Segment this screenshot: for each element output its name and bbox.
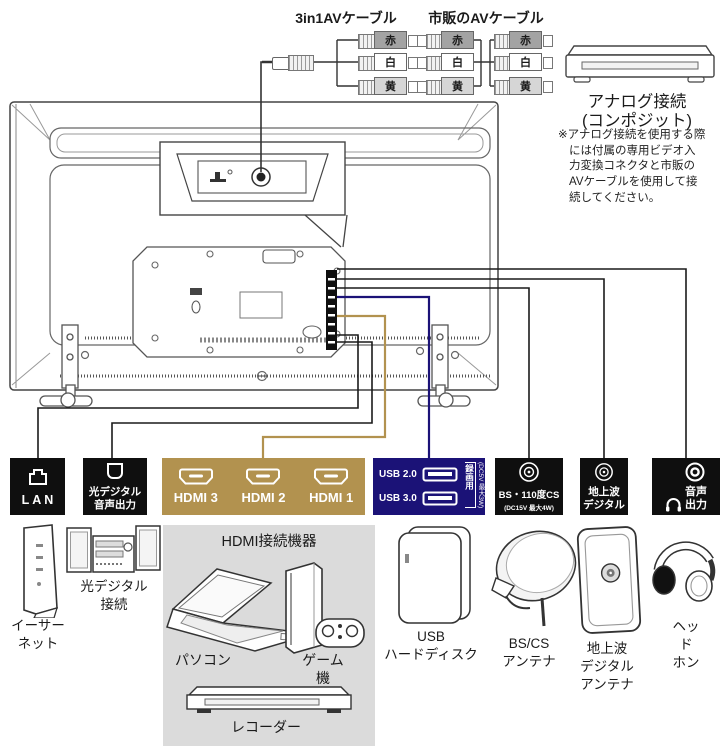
rca-tip — [543, 81, 553, 93]
port-audio-out: 音声 出力 — [652, 458, 720, 515]
port-usb-recording-note: 録画用 — [465, 462, 476, 508]
headphone-illustration — [646, 518, 720, 618]
port-optical-label: 光デジタル 音声出力 — [89, 486, 141, 511]
minijack-plug-collar — [288, 55, 314, 71]
recorder-label: レコーダー — [231, 718, 301, 736]
hdmi-port-icon — [178, 468, 214, 485]
audio-jack-icon — [684, 461, 706, 483]
pc-label: パソコン — [175, 651, 231, 669]
rca-label-white: 白 — [374, 53, 407, 71]
bscs-antenna-label: BS/CS アンテナ — [502, 635, 555, 671]
port-hdmi1-label: HDMI 1 — [309, 490, 353, 505]
analog-player-illustration — [560, 38, 720, 94]
port-hdmi-group: HDMI 3 HDMI 2 HDMI 1 — [162, 458, 365, 515]
terrestrial-antenna-illustration — [576, 521, 644, 639]
port-terrestrial-label: 地上波 デジタル — [583, 486, 625, 511]
terrestrial-antenna-label: 地上波 デジタル アンテナ — [580, 640, 634, 693]
usb-port-icon — [422, 491, 458, 506]
rca-label-red: 赤 — [374, 31, 407, 49]
port-usb2-label: USB 2.0 — [379, 469, 417, 480]
port-usb-power-note: (DC5V 最大3W) — [477, 462, 484, 508]
port-usb-group: USB 2.0 USB 3.0 録画用 (DC5V 最大3W) — [373, 458, 485, 515]
usb-hdd-illustration — [388, 522, 480, 626]
hdmi-devices-title: HDMI接続機器 — [163, 530, 375, 551]
port-terrestrial: 地上波 デジタル — [580, 458, 628, 515]
hdmi-port-icon — [313, 468, 349, 485]
rca-label-yellow: 黄 — [374, 77, 407, 95]
port-bs-label: BS・110度CS — [499, 487, 560, 501]
rca-tip — [543, 57, 553, 69]
wire-3in1-bracket — [312, 40, 358, 86]
rca-tip — [543, 35, 553, 47]
coax-port-icon — [518, 461, 540, 483]
port-bs-cs: BS・110度CS (DC15V 最大4W) — [495, 458, 563, 515]
port-hdmi2-label: HDMI 2 — [241, 490, 285, 505]
game-console-illustration — [278, 559, 374, 659]
port-optical: 光デジタル 音声出力 — [83, 458, 147, 515]
rca-connector — [358, 34, 375, 49]
headphone-label: ヘッド ホン — [669, 618, 704, 671]
stereo-device-illustration — [66, 522, 162, 576]
port-lan-label: LAN — [19, 493, 57, 507]
optical-connection-label: 光デジタル 接続 — [80, 578, 147, 614]
rca-connector — [358, 80, 375, 95]
port-usb3-label: USB 3.0 — [379, 493, 417, 504]
usb-hdd-label: USB ハードディスク — [384, 628, 478, 664]
wire-market-bracket — [474, 40, 494, 86]
headphone-icon — [665, 497, 682, 512]
port-lan: LAN — [10, 458, 65, 515]
rca-label-red: 赤 — [509, 31, 542, 49]
coax-port-icon — [594, 462, 614, 482]
rca-label-red: 赤 — [441, 31, 474, 49]
tv-connection-diagram: 3in1AVケーブル 市販のAVケーブル 赤 白 黄 赤 白 黄 赤 白 黄 ア… — [0, 0, 721, 749]
rca-connector — [358, 56, 375, 71]
cable-market-label: 市販のAVケーブル — [428, 8, 544, 28]
tv-back-illustration — [0, 95, 510, 410]
port-hdmi3: HDMI 3 — [174, 468, 218, 505]
hdmi-devices-panel: HDMI接続機器 パソコン ゲーム機 レコーダー — [163, 525, 375, 746]
ethernet-device-illustration — [12, 522, 64, 618]
rca-label-yellow: 黄 — [509, 77, 542, 95]
hdmi-port-icon — [245, 468, 281, 485]
rca-label-white: 白 — [509, 53, 542, 71]
recorder-illustration — [179, 683, 359, 717]
bscs-dish-illustration — [484, 522, 580, 628]
port-hdmi1: HDMI 1 — [309, 468, 353, 505]
analog-note: ※アナログ接続を使用する際 には付属の専用ビデオ入 力変換コネクタと市販の AV… — [558, 128, 721, 206]
tv-port-strip — [326, 270, 337, 350]
rca-label-white: 白 — [441, 53, 474, 71]
lan-port-icon — [25, 466, 51, 488]
rca-label-yellow: 黄 — [441, 77, 474, 95]
port-hdmi3-label: HDMI 3 — [174, 490, 218, 505]
usb-port-icon — [422, 467, 458, 482]
ethernet-label: イーサー ネット — [11, 617, 65, 653]
port-audio-label: 音声 出力 — [685, 486, 707, 511]
optical-port-icon — [105, 461, 125, 482]
cable-3in1-label: 3in1AVケーブル — [295, 8, 397, 28]
port-hdmi2: HDMI 2 — [241, 468, 285, 505]
port-bs-sub: (DC15V 最大4W) — [504, 502, 554, 512]
